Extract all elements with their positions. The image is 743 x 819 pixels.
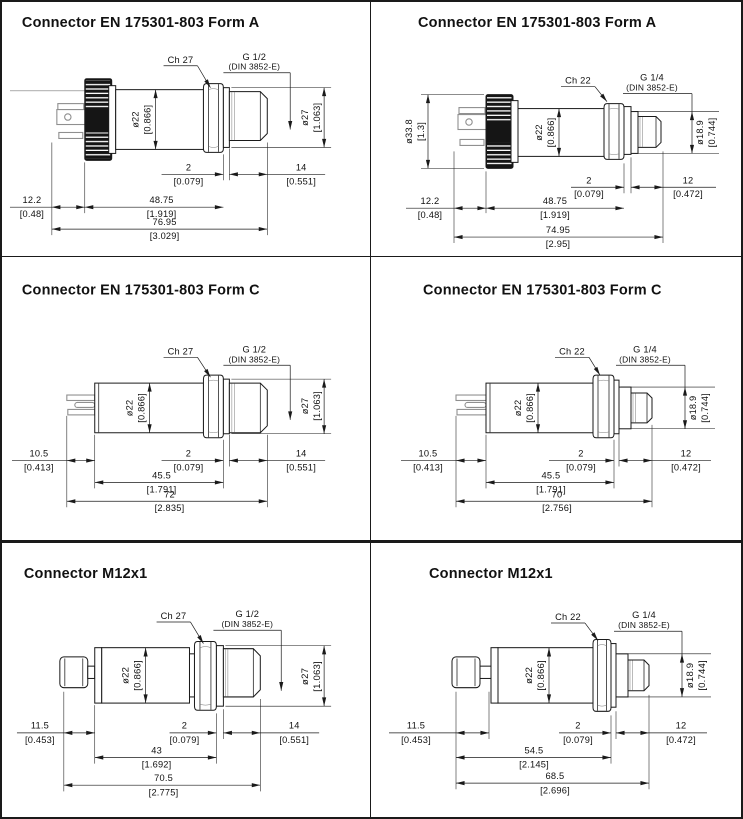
dim-conn-len-in: [0.413] — [413, 463, 443, 473]
dim-conn-len-mm: 10.5 — [29, 449, 48, 459]
seal-washer — [223, 379, 229, 434]
length-dimensions: 11.5 [0.453] 2 [0.079] 12 [0.472] 54.5 [… — [389, 692, 707, 796]
hex-nut — [203, 375, 223, 438]
dim-thread-len-mm: 12 — [681, 449, 692, 459]
hex-nut — [593, 639, 611, 711]
dim-total-len-mm: 70.5 — [154, 772, 173, 783]
wrench-size-label: Ch 27 — [161, 610, 187, 621]
dim-body-dia-mm: ø22 — [513, 400, 523, 416]
dim-thread-len-in: [0.551] — [279, 734, 309, 745]
transmitter-body — [518, 109, 604, 157]
dim-body-dia-in: [0.866] — [525, 393, 535, 423]
dim-total-len-in: [3.029] — [150, 231, 180, 241]
dim-body-dia-mm: ø22 — [125, 400, 135, 417]
dim-body-len-mm: 48.75 — [149, 195, 173, 205]
panel-form-c-g14: Connector EN 175301-803 Form C — [371, 257, 741, 543]
form-a-g14-drawing: Connector EN 175301-803 Form A ø33.8 [1.… — [371, 2, 741, 256]
panel-form-a-g12: Connector EN 175301-803 Form A — [2, 2, 371, 257]
outlet-step — [616, 654, 628, 697]
dim-outlet-dia-mm: ø18.9 — [684, 663, 695, 688]
dim-seal-mm: 2 — [186, 449, 191, 459]
seal-washer — [614, 380, 619, 434]
wrench-size-label: Ch 22 — [559, 346, 585, 356]
hex-nut — [203, 84, 223, 153]
dim-thread-len-in: [0.472] — [671, 463, 701, 473]
dim-seal-in: [0.079] — [174, 463, 204, 473]
thread-size-label: G 1/2 — [242, 344, 266, 354]
wrench-size-callout: Ch 27 — [157, 610, 204, 644]
dim-thread-len-mm: 14 — [289, 720, 300, 731]
dim-body-len-mm: 45.5 — [542, 470, 561, 480]
connector-cap — [85, 79, 116, 161]
dim-conn-len-mm: 12.2 — [421, 196, 440, 206]
dim-conn-len-in: [0.48] — [418, 210, 442, 220]
dim-outlet-dia-in: [0.744] — [707, 118, 717, 148]
dim-body-dia-in: [0.866] — [535, 660, 546, 691]
wrench-size-label: Ch 27 — [168, 346, 194, 356]
dim-outlet-dia-in: [1.063] — [312, 391, 322, 421]
dim-body-len-mm: 45.5 — [152, 470, 171, 480]
length-dimensions: 2 [0.079] 14 [0.551] 12.2 [0.48] 48.75 [… — [10, 142, 325, 241]
dim-outlet-dia-in: [0.744] — [700, 393, 710, 423]
dim-body-dia-mm: ø22 — [523, 667, 534, 684]
transmitter-body — [116, 90, 204, 150]
dim-body-dia-in: [0.866] — [546, 118, 556, 148]
dim-seal-in: [0.079] — [566, 463, 596, 473]
dim-thread-len-mm: 14 — [296, 162, 307, 172]
hex-nut — [194, 642, 216, 711]
dim-body-len-mm: 43 — [151, 744, 162, 755]
dim-total-len-in: [2.95] — [546, 239, 570, 249]
panel-title: Connector EN 175301-803 Form C — [423, 283, 662, 299]
wrench-size-callout: Ch 27 — [164, 55, 211, 88]
thread-port — [638, 117, 661, 148]
dim-total-len-mm: 70 — [552, 489, 563, 499]
transmitter-body — [95, 648, 195, 703]
panel-title: Connector EN 175301-803 Form C — [22, 283, 260, 299]
form-c-g12-drawing: Connector EN 175301-803 Form C — [2, 257, 370, 540]
wrench-size-callout: Ch 22 — [561, 76, 607, 102]
dim-conn-len-mm: 12.2 — [23, 195, 42, 205]
dim-thread-len-mm: 12 — [676, 720, 687, 731]
dim-body-dia-mm: ø22 — [131, 111, 141, 128]
thread-callout: G 1/4 (DIN 3852-E) — [614, 609, 682, 654]
dim-body-dia-in: [0.866] — [143, 105, 153, 135]
dim-total-len-in: [2.835] — [155, 503, 185, 513]
dim-seal-mm: 2 — [575, 720, 580, 731]
thread-callout: G 1/4 (DIN 3852-E) — [623, 73, 692, 112]
dim-seal-in: [0.079] — [174, 176, 204, 186]
dim-body-dia-in: [0.866] — [137, 393, 147, 423]
connector-cap — [486, 95, 518, 169]
thread-size-label: G 1/2 — [235, 608, 259, 619]
dim-total-len-mm: 72 — [164, 489, 175, 499]
thread-port — [223, 649, 260, 697]
dim-thread-len-in: [0.551] — [286, 463, 316, 473]
dim-outlet-dia-mm: ø27 — [299, 668, 310, 685]
m12-connector — [452, 657, 491, 688]
dim-total-len-in: [2.696] — [540, 784, 570, 795]
panel-title: Connector EN 175301-803 Form A — [418, 15, 657, 31]
dim-conn-len-in: [0.453] — [401, 734, 431, 745]
panel-form-a-g14: Connector EN 175301-803 Form A ø33.8 [1.… — [371, 2, 741, 257]
panel-m12-g14: Connector M12x1 — [371, 543, 741, 817]
dim-thread-len-mm: 14 — [296, 449, 307, 459]
dim-cap-dia-in: [1.3] — [416, 122, 426, 141]
dim-outlet-dia-mm: ø18.9 — [695, 120, 705, 145]
dim-conn-len-in: [0.48] — [20, 209, 44, 219]
wrench-size-callout: Ch 27 — [164, 346, 211, 377]
dim-seal-in: [0.079] — [563, 734, 593, 745]
dim-body-len-in: [1.692] — [142, 759, 172, 770]
thread-standard-label: (DIN 3852-E) — [221, 619, 273, 629]
dim-body-len-mm: 48.75 — [543, 196, 567, 206]
dim-body-dia-mm: ø22 — [534, 124, 544, 141]
panel-title: Connector EN 175301-803 Form A — [22, 15, 260, 31]
m12-g12-drawing: Connector M12x1 — [2, 543, 370, 817]
thread-size-label: G 1/2 — [242, 52, 266, 62]
dim-total-len-mm: 68.5 — [546, 770, 565, 781]
seal-washer — [216, 646, 223, 707]
seal-washer — [223, 88, 229, 148]
connector-pins — [456, 395, 486, 415]
dim-outlet-dia-mm: ø27 — [300, 398, 310, 415]
dim-seal-mm: 2 — [586, 175, 591, 185]
thread-callout: G 1/4 (DIN 3852-E) — [616, 344, 685, 387]
cap-diameter-dim: ø33.8 [1.3] — [404, 95, 484, 169]
panel-form-c-g12: Connector EN 175301-803 Form C — [2, 257, 371, 543]
dim-outlet-dia-in: [0.744] — [696, 660, 707, 691]
dim-outlet-dia-in: [1.063] — [311, 661, 322, 692]
dim-thread-len-mm: 12 — [683, 175, 694, 185]
thread-standard-label: (DIN 3852-E) — [626, 83, 678, 93]
dim-conn-len-mm: 10.5 — [419, 449, 438, 459]
form-c-g14-drawing: Connector EN 175301-803 Form C — [371, 257, 741, 540]
dim-total-len-in: [2.775] — [149, 786, 179, 797]
wrench-size-callout: Ch 22 — [551, 611, 598, 641]
thread-standard-label: (DIN 3852-E) — [228, 354, 280, 364]
m12-connector — [60, 657, 95, 688]
dim-total-len-in: [2.756] — [542, 503, 572, 513]
hex-nut — [593, 375, 614, 438]
thread-port — [229, 383, 267, 433]
dim-body-dia-in: [0.866] — [132, 660, 143, 691]
length-dimensions: 2 [0.079] 12 [0.472] 12.2 [0.48] 48.75 [… — [406, 151, 716, 249]
dim-conn-len-mm: 11.5 — [31, 720, 49, 731]
dim-conn-len-in: [0.413] — [24, 463, 54, 473]
wrench-size-label: Ch 27 — [168, 55, 194, 65]
thread-port — [631, 393, 652, 423]
dim-seal-mm: 2 — [186, 162, 191, 172]
dim-outlet-dia-in: [1.063] — [312, 103, 322, 133]
wrench-size-callout: Ch 22 — [555, 346, 600, 375]
dim-body-dia-mm: ø22 — [120, 667, 131, 684]
connector-pins — [458, 108, 487, 146]
dim-thread-len-in: [0.472] — [666, 734, 696, 745]
dim-total-len-mm: 74.95 — [546, 225, 570, 235]
dim-seal-in: [0.079] — [170, 734, 200, 745]
dim-conn-len-mm: 11.5 — [407, 720, 425, 731]
dim-total-len-mm: 76.95 — [152, 217, 176, 227]
dim-outlet-dia-mm: ø27 — [300, 109, 310, 126]
connector-pins — [57, 104, 86, 139]
hex-nut — [604, 104, 624, 160]
outlet-step — [631, 112, 638, 154]
dim-seal-mm: 2 — [578, 449, 583, 459]
thread-size-label: G 1/4 — [632, 609, 656, 620]
thread-standard-label: (DIN 3852-E) — [228, 62, 280, 72]
connector-dimension-drawings-sheet: Connector EN 175301-803 Form A — [0, 0, 743, 819]
form-a-g12-drawing: Connector EN 175301-803 Form A — [2, 2, 370, 256]
thread-port — [628, 660, 649, 691]
dim-thread-len-in: [0.551] — [286, 176, 316, 186]
dim-seal-in: [0.079] — [574, 189, 604, 199]
panel-m12-g12: Connector M12x1 — [2, 543, 371, 817]
thread-size-label: G 1/4 — [640, 73, 664, 83]
dim-conn-len-in: [0.453] — [25, 734, 55, 745]
dim-body-len-in: [1.919] — [540, 210, 570, 220]
dim-thread-len-in: [0.472] — [673, 189, 703, 199]
seal-washer — [624, 107, 631, 155]
length-dimensions: 11.5 [0.453] 2 [0.079] 14 [0.551] 43 [1.… — [17, 692, 319, 798]
dim-outlet-dia-mm: ø18.9 — [688, 396, 698, 421]
thread-standard-label: (DIN 3852-E) — [619, 354, 671, 364]
dim-seal-mm: 2 — [182, 720, 187, 731]
seal-washer — [611, 644, 616, 708]
panel-title: Connector M12x1 — [429, 566, 553, 582]
thread-port — [229, 92, 267, 141]
outlet-step — [619, 387, 631, 429]
connector-pins — [67, 395, 95, 415]
dim-body-len-mm: 54.5 — [525, 744, 544, 755]
m12-g14-drawing: Connector M12x1 — [371, 543, 741, 817]
transmitter-body — [95, 383, 204, 433]
wrench-size-label: Ch 22 — [565, 76, 591, 86]
thread-size-label: G 1/4 — [633, 344, 657, 354]
panel-title: Connector M12x1 — [24, 566, 147, 582]
wrench-size-label: Ch 22 — [555, 611, 581, 622]
thread-standard-label: (DIN 3852-E) — [618, 620, 670, 630]
transmitter-body — [486, 383, 593, 433]
dim-cap-dia-mm: ø33.8 — [404, 119, 414, 144]
dim-body-len-in: [2.145] — [519, 759, 549, 770]
